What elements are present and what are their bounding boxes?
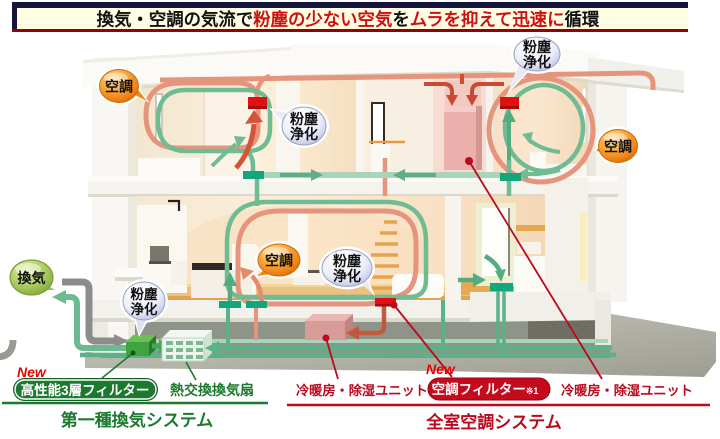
svg-text:空調フィルター※1: 空調フィルター※1 [432,381,539,397]
svg-text:空調: 空調 [265,253,293,269]
svg-text:浄化: 浄化 [290,126,318,142]
svg-text:粉塵: 粉塵 [290,111,318,127]
svg-text:粉塵: 粉塵 [333,253,361,269]
svg-text:冷暖房・除湿ユニット: 冷暖房・除湿ユニット [296,382,428,398]
svg-text:粉塵: 粉塵 [523,39,551,55]
svg-text:浄化: 浄化 [131,301,158,317]
svg-text:New: New [17,364,47,380]
svg-text:熱交換換気扇: 熱交換換気扇 [170,382,254,398]
svg-text:空調: 空調 [604,139,632,155]
svg-text:高性能3層フィルター: 高性能3層フィルター [21,382,150,398]
svg-text:換気・空調の気流で粉塵の少ない空気をムラを抑えて迅速に循環: 換気・空調の気流で粉塵の少ない空気をムラを抑えて迅速に循環 [97,10,600,30]
svg-text:粉塵: 粉塵 [131,286,158,302]
svg-text:全室空調システム: 全室空調システム [425,412,562,432]
svg-text:第一種換気システム: 第一種換気システム [61,410,214,430]
svg-text:浄化: 浄化 [523,54,551,70]
svg-text:換気: 換気 [18,270,46,286]
svg-text:冷暖房・除湿ユニット: 冷暖房・除湿ユニット [561,382,693,398]
svg-text:New: New [426,361,456,377]
svg-text:浄化: 浄化 [333,268,361,284]
svg-text:空調: 空調 [105,79,133,95]
